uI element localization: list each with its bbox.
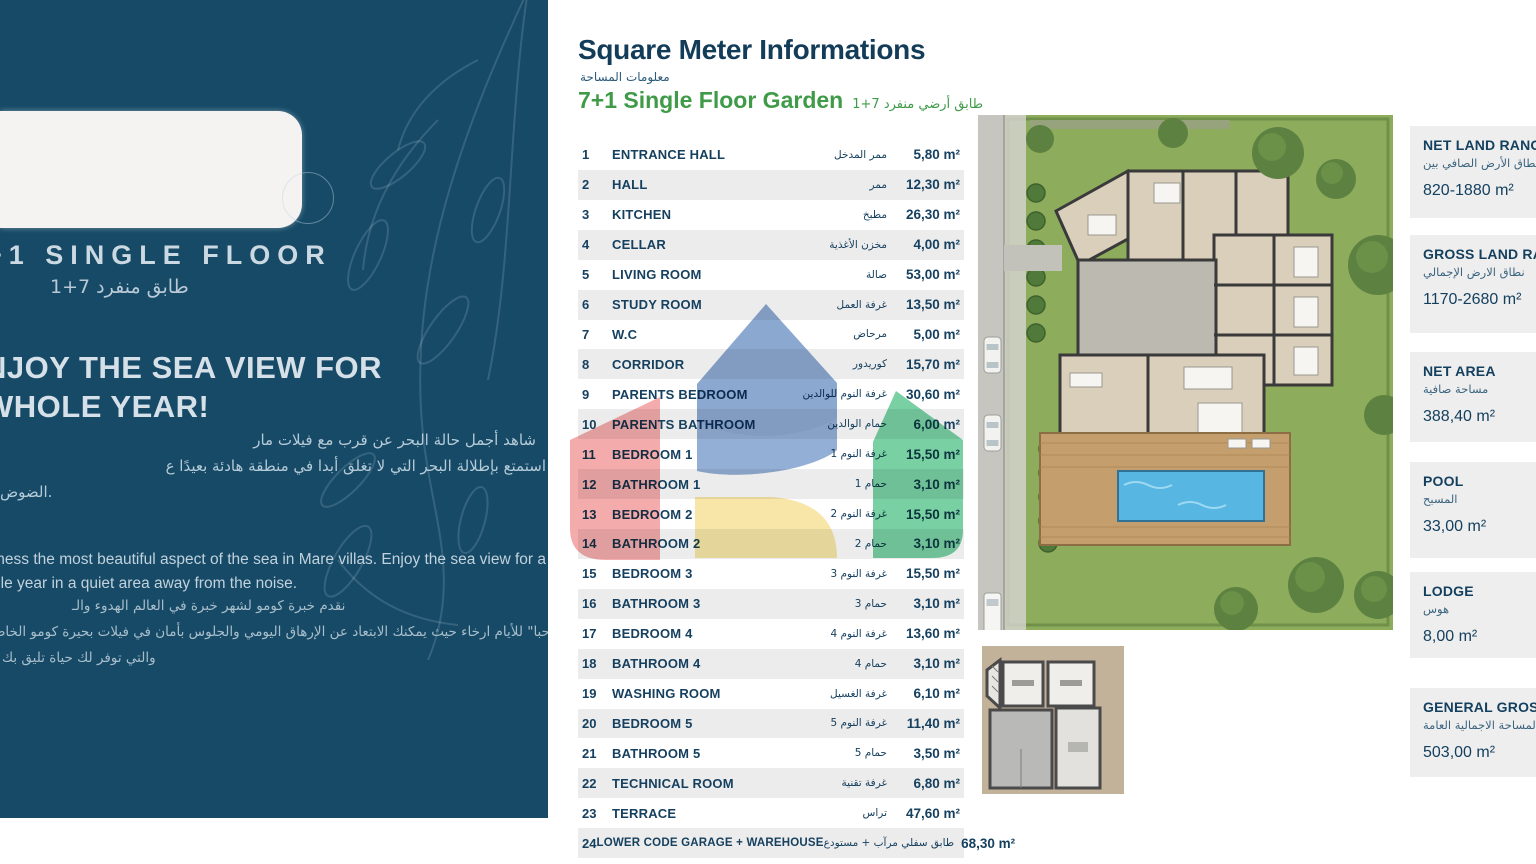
table-row: 10PARENTS BATHROOMحمام الوالدين6,00 m² — [578, 409, 964, 439]
sidewalk — [1004, 115, 1026, 630]
room-number: 7 — [582, 327, 612, 342]
basement-plan-image — [982, 646, 1124, 794]
table-row: 4CELLARمخزن الأغذية4,00 m² — [578, 230, 964, 260]
summary-box: GROSS LAND RANGEنطاق الارض الإجمالي1170-… — [1410, 235, 1536, 333]
room-name: W.C — [612, 327, 853, 342]
summary-title-arabic: المساحة الاجمالية العامة — [1423, 718, 1536, 732]
room-name: CELLAR — [612, 237, 829, 252]
room-area-value: 3,10 m² — [894, 477, 960, 492]
arabic-paragraph2-line: نقدم خبرة كومو لشهر خبرة في العالم الهدو… — [72, 598, 345, 614]
room-label-mark — [1068, 742, 1088, 752]
summary-box: NET AREAمساحة صافية388,40 m² — [1410, 352, 1536, 442]
room-name-arabic: غرفة النوم 3 — [830, 568, 887, 580]
room-name: CORRIDOR — [612, 357, 853, 372]
room-name-arabic: حمام 4 — [855, 658, 887, 670]
room-name: TECHNICAL ROOM — [612, 776, 842, 791]
summary-title: NET LAND RANGE — [1423, 137, 1536, 153]
summary-title: GENERAL GROSS — [1423, 699, 1536, 715]
room-number: 21 — [582, 746, 612, 761]
room-area-value: 30,60 m² — [894, 387, 960, 402]
room-label-mark — [1060, 680, 1082, 686]
room-name-arabic: حمام 1 — [855, 478, 887, 490]
panel-title-arabic: طابق منفرد 7+1 — [50, 276, 189, 298]
summary-value: 503,00 m² — [1423, 744, 1536, 762]
room-name-arabic: غرفة تقنية — [842, 777, 887, 789]
room-name-arabic: صالة — [866, 269, 887, 281]
summary-value: 388,40 m² — [1423, 408, 1536, 426]
summary-title-arabic: المسبح — [1423, 492, 1536, 506]
table-row: 2HALLممر12,30 m² — [578, 170, 964, 200]
room-table: 1ENTRANCE HALLممر المدخل5,80 m²2HALLممر1… — [578, 140, 964, 858]
table-row: 15BEDROOM 3غرفة النوم 315,50 m² — [578, 559, 964, 589]
room-number: 24 — [582, 836, 596, 851]
redacted-logo-block — [0, 111, 302, 228]
room-number: 16 — [582, 596, 612, 611]
room-number: 22 — [582, 776, 612, 791]
room-number: 9 — [582, 387, 612, 402]
table-row: 3KITCHENمطبخ26,30 m² — [578, 200, 964, 230]
room-name-arabic: كوريدور — [853, 358, 887, 370]
table-row: 14BATHROOM 2حمام 23,10 m² — [578, 529, 964, 559]
circle-outline-decoration — [282, 172, 334, 224]
room-number: 10 — [582, 417, 612, 432]
room-number: 17 — [582, 626, 612, 641]
room-name-arabic: مرحاض — [853, 328, 887, 340]
summary-title: NET AREA — [1423, 363, 1536, 379]
room-name: BATHROOM 2 — [612, 536, 855, 551]
room-name: WASHING ROOM — [612, 686, 830, 701]
room-area-value: 15,70 m² — [894, 357, 960, 372]
room-name: BEDROOM 3 — [612, 566, 830, 581]
summary-title: POOL — [1423, 473, 1536, 489]
room-number: 11 — [582, 447, 612, 462]
room-area-value: 5,00 m² — [894, 327, 960, 342]
table-row: 20BEDROOM 5غرفة النوم 511,40 m² — [578, 709, 964, 739]
room-name-arabic: غرفة العمل — [837, 299, 887, 311]
room-number: 15 — [582, 566, 612, 581]
table-row: 17BEDROOM 4غرفة النوم 413,60 m² — [578, 619, 964, 649]
summary-title-arabic: هوس — [1423, 602, 1536, 616]
summary-title: GROSS LAND RANGE — [1423, 246, 1536, 262]
room-name-arabic: حمام 3 — [855, 598, 887, 610]
room-area-value: 13,60 m² — [894, 626, 960, 641]
summary-title: LODGE — [1423, 583, 1536, 599]
room-number: 5 — [582, 267, 612, 282]
headline-line-1: NJOY THE SEA VIEW FOR — [0, 348, 382, 387]
table-row: 21BATHROOM 5حمام 53,50 m² — [578, 738, 964, 768]
room-name-arabic: غرفة النوم 4 — [830, 628, 887, 640]
table-row: 5LIVING ROOMصالة53,00 m² — [578, 260, 964, 290]
summary-box: GENERAL GROSSالمساحة الاجمالية العامة503… — [1410, 688, 1536, 777]
room-number: 2 — [582, 177, 612, 192]
room-name: KITCHEN — [612, 207, 863, 222]
table-row: 24LOWER CODE GARAGE + WAREHOUSEطابق سفلي… — [578, 828, 964, 858]
room-area-value: 6,10 m² — [894, 686, 960, 701]
room-number: 4 — [582, 237, 612, 252]
room-name-arabic: غرفة النوم 1 — [830, 448, 887, 460]
room-name: PARENTS BEDROOM — [612, 387, 803, 402]
summary-value: 1170-2680 m² — [1423, 291, 1536, 309]
room-number: 6 — [582, 297, 612, 312]
summary-box: POOLالمسبح33,00 m² — [1410, 462, 1536, 558]
table-row: 16BATHROOM 3حمام 33,10 m² — [578, 589, 964, 619]
room-name: BEDROOM 4 — [612, 626, 830, 641]
room-name-arabic: غرفة الغسيل — [830, 688, 887, 700]
room-name: HALL — [612, 177, 870, 192]
table-row: 9PARENTS BEDROOMغرفة النوم للوالدين30,60… — [578, 379, 964, 409]
room-name: BATHROOM 4 — [612, 656, 855, 671]
summary-value: 33,00 m² — [1423, 518, 1536, 536]
room-area-value: 12,30 m² — [894, 177, 960, 192]
room-number: 13 — [582, 507, 612, 522]
room-area-value: 4,00 m² — [894, 237, 960, 252]
room-area-value: 15,50 m² — [894, 507, 960, 522]
table-row: 1ENTRANCE HALLممر المدخل5,80 m² — [578, 140, 964, 170]
brochure-page: +1 SINGLE FLOOR طابق منفرد 7+1 NJOY THE … — [0, 0, 1536, 864]
summary-title-arabic: نطاق الأرض الصافي بين — [1423, 156, 1536, 170]
arabic-paragraph-line: شاهد أجمل حالة البحر عن قرب مع فيلات مار — [253, 431, 536, 449]
left-panel: +1 SINGLE FLOOR طابق منفرد 7+1 NJOY THE … — [0, 0, 548, 818]
arabic-paragraph2-line: والتي توفر لك حياة تليق بك — [2, 650, 156, 666]
room-number: 20 — [582, 716, 612, 731]
room-name: LOWER CODE GARAGE + WAREHOUSE — [596, 837, 823, 849]
room-name: BATHROOM 1 — [612, 477, 855, 492]
room-name: ENTRANCE HALL — [612, 147, 834, 162]
room-name-arabic: حمام 2 — [855, 538, 887, 550]
arabic-paragraph-line: استمتع بإطلالة البحر التي لا تغلق أبدا ف… — [166, 457, 546, 475]
room-number: 3 — [582, 207, 612, 222]
room-name: BEDROOM 2 — [612, 507, 830, 522]
table-row: 13BEDROOM 2غرفة النوم 215,50 m² — [578, 499, 964, 529]
panel-title: +1 SINGLE FLOOR — [0, 240, 332, 271]
room-number: 23 — [582, 806, 612, 821]
room-area-value: 15,50 m² — [894, 566, 960, 581]
room-name-arabic: حمام 5 — [855, 747, 887, 759]
room-area-value: 5,80 m² — [894, 147, 960, 162]
page-title-arabic: معلومات المساحة — [580, 70, 670, 84]
table-row: 22TECHNICAL ROOMغرفة تقنية6,80 m² — [578, 768, 964, 798]
room-name-arabic: غرفة النوم للوالدين — [803, 388, 887, 400]
summary-title-arabic: نطاق الارض الإجمالي — [1423, 265, 1536, 279]
room-number: 14 — [582, 536, 612, 551]
english-paragraph-line: tness the most beautiful aspect of the s… — [0, 551, 546, 569]
room-name-arabic: حمام الوالدين — [827, 418, 887, 430]
room-area-value: 26,30 m² — [894, 207, 960, 222]
room-area-value: 15,50 m² — [894, 447, 960, 462]
room-area-value: 3,10 m² — [894, 596, 960, 611]
hedge — [1030, 120, 1230, 129]
room-area-value: 11,40 m² — [894, 716, 960, 731]
summary-box: LODGEهوس8,00 m² — [1410, 572, 1536, 658]
table-row: 12BATHROOM 1حمام 13,10 m² — [578, 469, 964, 499]
room-name: BATHROOM 3 — [612, 596, 855, 611]
swimming-pool — [1118, 471, 1264, 521]
room-name-arabic: ممر المدخل — [834, 149, 887, 161]
room-number: 8 — [582, 357, 612, 372]
arabic-paragraph-line: .الضوض — [0, 483, 52, 501]
table-row: 23TERRACEتراس47,60 m² — [578, 798, 964, 828]
room-name-arabic: مخزن الأغذية — [829, 239, 887, 251]
table-row: 19WASHING ROOMغرفة الغسيل6,10 m² — [578, 679, 964, 709]
room-area-value: 53,00 m² — [894, 267, 960, 282]
room-area-value: 6,00 m² — [894, 417, 960, 432]
plan-subtitle-arabic: طابق أرضي منفرد 7+1 — [852, 97, 983, 112]
english-paragraph-line: ole year in a quiet area away from the n… — [0, 575, 297, 593]
panel-headline: NJOY THE SEA VIEW FOR WHOLE YEAR! — [0, 348, 382, 426]
room-number: 18 — [582, 656, 612, 671]
room-number: 1 — [582, 147, 612, 162]
summary-title-arabic: مساحة صافية — [1423, 382, 1536, 396]
table-row: 7W.Cمرحاض5,00 m² — [578, 320, 964, 350]
site-plan-image — [978, 115, 1393, 630]
room-name-arabic: غرفة النوم 2 — [830, 508, 887, 520]
room-area-value: 68,30 m² — [961, 836, 1015, 851]
arabic-paragraph2-line: قل "مرحبا" للأيام ارخاء حيث يمكنك الابتع… — [0, 624, 548, 640]
room-name: BEDROOM 5 — [612, 716, 830, 731]
room-number: 19 — [582, 686, 612, 701]
page-title: Square Meter Informations — [578, 34, 925, 66]
plan-subtitle: 7+1 Single Floor Garden — [578, 87, 843, 114]
room-name-arabic: ممر — [870, 179, 888, 191]
summary-value: 820-1880 m² — [1423, 182, 1536, 200]
room-area-value: 3,50 m² — [894, 746, 960, 761]
summary-value: 8,00 m² — [1423, 628, 1536, 646]
room-area-value: 3,10 m² — [894, 656, 960, 671]
room-name: BATHROOM 5 — [612, 746, 855, 761]
plan-subtitle-row: 7+1 Single Floor Garden طابق أرضي منفرد … — [578, 87, 983, 114]
driveway — [1004, 245, 1062, 271]
room-name: PARENTS BATHROOM — [612, 417, 827, 432]
room-name-arabic: غرفة النوم 5 — [830, 717, 887, 729]
room-area-value: 47,60 m² — [894, 806, 960, 821]
room-name-arabic: تراس — [863, 807, 887, 819]
room-name: STUDY ROOM — [612, 297, 837, 312]
room-number: 12 — [582, 477, 612, 492]
room-name-arabic: طابق سفلي مرآب + مستودع — [824, 837, 954, 849]
room-name: LIVING ROOM — [612, 267, 866, 282]
room-area-value: 13,50 m² — [894, 297, 960, 312]
room-area-value: 3,10 m² — [894, 536, 960, 551]
summary-box: NET LAND RANGEنطاق الأرض الصافي بين820-1… — [1410, 126, 1536, 218]
table-row: 8CORRIDORكوريدور15,70 m² — [578, 349, 964, 379]
room-label-mark — [1012, 680, 1034, 686]
room-name: BEDROOM 1 — [612, 447, 830, 462]
table-row: 6STUDY ROOMغرفة العمل13,50 m² — [578, 290, 964, 320]
room-name-arabic: مطبخ — [863, 209, 887, 221]
room-area-value: 6,80 m² — [894, 776, 960, 791]
table-row: 18BATHROOM 4حمام 43,10 m² — [578, 649, 964, 679]
table-row: 11BEDROOM 1غرفة النوم 115,50 m² — [578, 439, 964, 469]
room-name: TERRACE — [612, 806, 863, 821]
headline-line-2: WHOLE YEAR! — [0, 387, 382, 426]
